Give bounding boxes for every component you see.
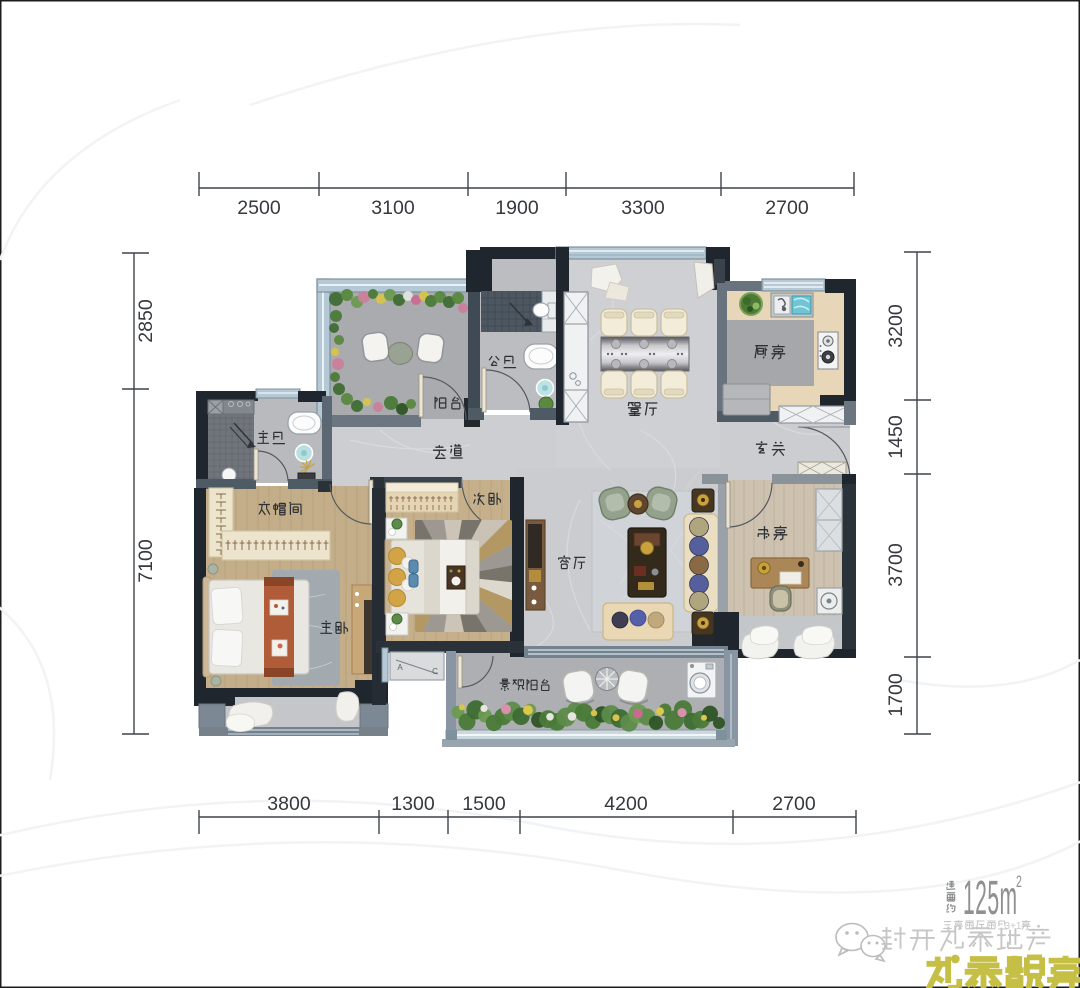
svg-text:2850: 2850: [135, 299, 157, 343]
svg-text:1500: 1500: [462, 793, 506, 815]
svg-text:4200: 4200: [604, 793, 648, 815]
svg-text:7100: 7100: [135, 539, 157, 583]
svg-text:2500: 2500: [237, 197, 281, 219]
svg-text:1900: 1900: [495, 197, 539, 219]
svg-text:3200: 3200: [885, 304, 907, 348]
svg-text:1300: 1300: [391, 793, 435, 815]
svg-text:3+1: 3+1: [1005, 921, 1022, 932]
svg-text:2700: 2700: [765, 197, 809, 219]
svg-text:125m: 125m: [963, 870, 1018, 924]
svg-text:1450: 1450: [885, 415, 907, 459]
svg-text:3800: 3800: [267, 793, 311, 815]
svg-text:3300: 3300: [621, 197, 665, 219]
svg-text:A: A: [397, 663, 403, 672]
svg-text:1700: 1700: [885, 673, 907, 717]
svg-text:2: 2: [1016, 871, 1022, 890]
svg-text:2700: 2700: [772, 793, 816, 815]
svg-text:C: C: [432, 667, 438, 676]
svg-text:3700: 3700: [885, 543, 907, 587]
svg-text:3100: 3100: [371, 197, 415, 219]
